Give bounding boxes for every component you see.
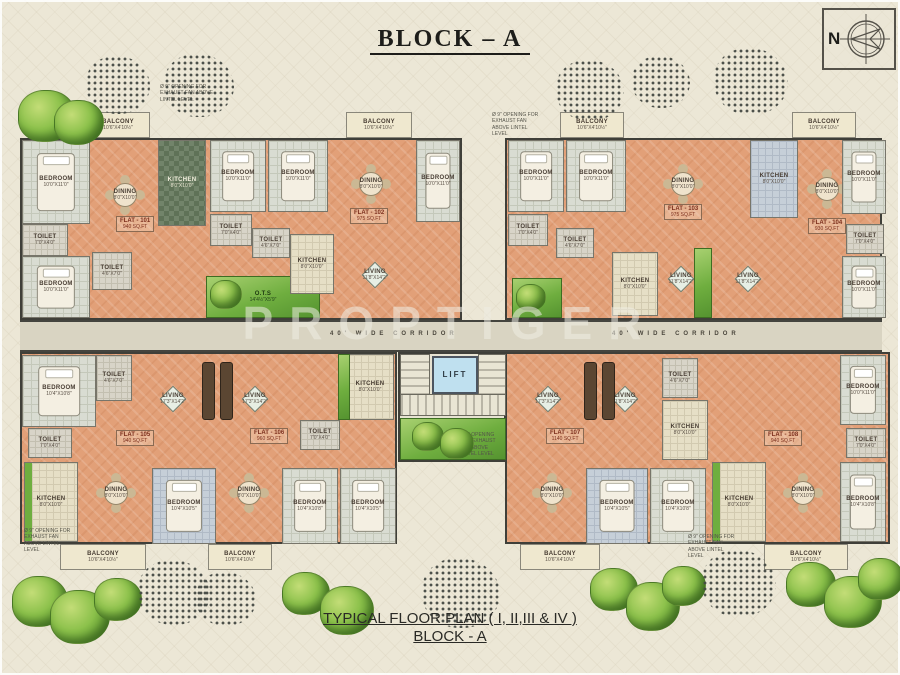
bed-icon <box>37 266 75 309</box>
room-label: KITCHEN <box>671 424 700 431</box>
toilet: TOILET7'0"X4'0" <box>22 224 68 256</box>
kitchen: KITCHEN8'0"X10'0" <box>662 400 708 460</box>
table-round-icon <box>237 481 261 505</box>
room-label: BALCONY <box>224 551 256 558</box>
toilet: TOILET7'0"X4'0" <box>300 420 340 450</box>
room-dims: 10'6"X4'10½" <box>577 126 607 132</box>
bush-icon <box>632 56 690 108</box>
room-dims: 10'6"X4'10½" <box>364 126 394 132</box>
room-dims: 7'0"X4'0" <box>856 444 876 450</box>
room-dims: 8'0"X10'0" <box>674 431 697 437</box>
toilet: TOILET7'0"X4'0" <box>28 428 72 458</box>
room-dims: 10'6"X4'10½" <box>225 558 255 564</box>
living: LIVING11'8"X14'2" <box>716 240 780 318</box>
table-diamond-icon <box>160 386 187 413</box>
bedroom: BEDROOM10'0"X11'0" <box>22 140 90 224</box>
plan-title: BLOCK – A <box>0 26 900 53</box>
toilet: TOILET7'0"X4'0" <box>846 224 884 254</box>
flat-area: 930 SQ.FT <box>812 226 842 232</box>
table-diamond-icon <box>242 386 269 413</box>
wardrobe <box>602 362 615 420</box>
room-label: BALCONY <box>87 551 119 558</box>
room-label: TOILET <box>33 234 56 241</box>
room-label: KITCHEN <box>356 381 385 388</box>
room-label: KITCHEN <box>725 496 754 503</box>
corridor-label-right: 40' WIDE CORRIDOR <box>612 331 740 337</box>
room-dims: 8'0"X10'0" <box>40 503 63 509</box>
table-round-icon <box>113 183 137 207</box>
room-label: TOILET <box>563 237 586 244</box>
bed-icon <box>850 474 876 529</box>
annotation-note: Ø 9" OPENING FOR EXHAUST FAN ABOVE LINTE… <box>492 112 544 137</box>
table-round-icon <box>540 481 564 505</box>
flat-area: 960 SQ.FT <box>254 436 284 442</box>
bedroom: BEDROOM10'0"X11'0" <box>268 140 328 212</box>
stair-landing <box>400 394 506 416</box>
room-dims: 4'6"X7'0" <box>261 244 281 250</box>
balcony: BALCONY10'6"X4'10½" <box>208 544 272 570</box>
room-label: KITCHEN <box>298 258 327 265</box>
bed-icon <box>662 480 694 532</box>
room-label: BALCONY <box>363 119 395 126</box>
room-dims: 10'6"X4'10½" <box>103 126 133 132</box>
flat-label: FLAT - 104930 SQ.FT <box>808 218 846 234</box>
room-label: TOILET <box>308 429 331 436</box>
bedroom: BEDROOM10'0"X11'0" <box>840 355 886 425</box>
bush-icon <box>556 60 624 121</box>
bed-icon <box>352 480 384 532</box>
dining: DINING8'0"X10'0" <box>84 452 148 534</box>
garden-strip <box>694 248 712 318</box>
balcony: BALCONY10'6"X4'10½" <box>792 112 856 138</box>
kitchen: KITCHEN8'0"X10'0" <box>158 140 206 226</box>
bed-icon <box>281 151 315 201</box>
room-label: TOILET <box>259 237 282 244</box>
annotation-note: Ø 9" OPENING FOR EXHAUST FAN ABOVE LINTE… <box>24 528 74 553</box>
table-diamond-icon <box>612 386 639 413</box>
room-dims: 10'6"X4'10½" <box>809 126 839 132</box>
kitchen: KITCHEN8'0"X10'0" <box>750 140 798 218</box>
bedroom: BEDROOM10'4"X10'8" <box>840 462 886 542</box>
room-label: BALCONY <box>544 551 576 558</box>
room-label: BALCONY <box>808 119 840 126</box>
bedroom: BEDROOM10'0"X11'0" <box>566 140 626 212</box>
flat-label: FLAT - 106960 SQ.FT <box>250 428 288 444</box>
toilet: TOILET4'6"X7'0" <box>252 228 290 258</box>
room-dims: 7'0"X4'0" <box>310 436 330 442</box>
flat-area: 940 SQ.FT <box>120 438 150 444</box>
dining: DINING8'0"X10'0" <box>92 140 158 250</box>
bedroom: BEDROOM10'0"X11'0" <box>508 140 564 212</box>
room-label: KITCHEN <box>168 177 197 184</box>
bed-icon <box>851 152 876 203</box>
bush-icon <box>86 56 150 114</box>
tree-icon <box>858 558 900 600</box>
bedroom: BEDROOM10'0"X11'0" <box>22 256 90 318</box>
flat-area: 975 SQ.FT <box>668 212 698 218</box>
room-label: BALCONY <box>790 551 822 558</box>
room-label: KITCHEN <box>621 278 650 285</box>
flat-area: 975 SQ.FT <box>354 216 384 222</box>
bedroom: BEDROOM10'4"X10'8" <box>650 468 706 544</box>
bedroom: BEDROOM10'0"X11'0" <box>842 140 886 214</box>
room-label: TOILET <box>516 224 539 231</box>
table-diamond-icon <box>535 386 562 413</box>
bed-icon <box>166 480 202 532</box>
bed-icon <box>37 153 75 211</box>
bedroom: BEDROOM10'4"X10'5" <box>586 468 648 544</box>
bedroom: BEDROOM10'4"X10'5" <box>340 468 396 544</box>
bed-icon <box>38 366 80 416</box>
room-label: O.T.S <box>255 291 272 298</box>
room-label: KITCHEN <box>760 173 789 180</box>
kitchen: KITCHEN8'0"X10'0" <box>346 354 394 420</box>
bed-icon <box>600 480 635 532</box>
flat-label: FLAT - 1071140 SQ.FT <box>546 428 584 444</box>
room-dims: 8'0"X10'0" <box>171 184 194 190</box>
corridor-label-left: 40' WIDE CORRIDOR <box>330 331 458 337</box>
table-diamond-icon <box>362 262 389 289</box>
toilet: TOILET4'6"X7'0" <box>96 355 132 401</box>
table-round-icon <box>815 177 839 201</box>
plan-title-text: BLOCK – A <box>370 26 531 55</box>
room-dims: 7'0"X4'0" <box>40 444 60 450</box>
flat-label: FLAT - 105940 SQ.FT <box>116 430 154 446</box>
floor-plan-canvas: BLOCK – A N 40' WIDE CORRIDOR 40' WIDE C… <box>0 0 900 675</box>
room-dims: 10'6"X4'10½" <box>88 558 118 564</box>
dining: DINING8'0"X10'0" <box>770 452 836 534</box>
room-dims: 4'6"X7'0" <box>102 272 122 278</box>
room-label: TOILET <box>100 265 123 272</box>
footer-line2: BLOCK - A <box>0 628 900 645</box>
flat-label: FLAT - 102975 SQ.FT <box>350 208 388 224</box>
garden-strip <box>338 354 350 420</box>
room-label: TOILET <box>38 437 61 444</box>
room-label: TOILET <box>219 224 242 231</box>
wardrobe <box>202 362 215 420</box>
dining: DINING8'0"X10'0" <box>520 452 584 534</box>
bed-icon <box>294 480 326 532</box>
wardrobe <box>584 362 597 420</box>
room-dims: 8'0"X10'0" <box>301 265 324 271</box>
room-dims: 8'0"X10'0" <box>728 503 751 509</box>
living: LIVING11'8"X14'2" <box>590 355 660 443</box>
toilet: TOILET4'6"X7'0" <box>92 252 132 290</box>
flat-area: 940 SQ.FT <box>120 224 150 230</box>
bed-icon <box>850 366 876 414</box>
compass-rose-icon <box>840 12 890 66</box>
kitchen: KITCHEN8'0"X10'0" <box>712 462 766 542</box>
bush-icon <box>714 48 788 115</box>
bedroom: BEDROOM10'0"X11'0" <box>842 256 886 318</box>
bedroom: BEDROOM10'0"X11'0" <box>210 140 266 212</box>
room-label: LIFT <box>443 370 468 379</box>
bedroom: BEDROOM10'0"X11'0" <box>416 140 460 222</box>
flat-label: FLAT - 103975 SQ.FT <box>664 204 702 220</box>
room-dims: 10'6"X4'10½" <box>545 558 575 564</box>
table-round-icon <box>104 481 128 505</box>
table-round-icon <box>359 172 383 196</box>
lift: LIFT <box>432 356 478 394</box>
room-label: TOILET <box>853 233 876 240</box>
bedroom: BEDROOM10'4"X10'8" <box>282 468 338 544</box>
room-label: BALCONY <box>102 119 134 126</box>
room-dims: 4'6"X7'0" <box>670 379 690 385</box>
room-dims: 4'6"X7'0" <box>565 244 585 250</box>
balcony: BALCONY10'6"X4'10½" <box>520 544 600 570</box>
room-label: TOILET <box>854 437 877 444</box>
bed-icon <box>425 153 450 209</box>
dining: DINING8'0"X10'0" <box>218 452 280 534</box>
toilet: TOILET4'6"X7'0" <box>556 228 594 258</box>
room-label: KITCHEN <box>37 496 66 503</box>
table-diamond-icon <box>735 266 762 293</box>
bed-icon <box>851 266 876 309</box>
flat-area: 1140 SQ.FT <box>550 436 580 442</box>
living: LIVING11'8"X14'2" <box>336 232 414 318</box>
bush-icon <box>702 550 776 617</box>
room-dims: 8'0"X10'0" <box>359 388 382 394</box>
room-dims: 7'0"X4'0" <box>518 231 538 237</box>
plan-footer: TYPICAL FLOOR PLAN ( I, II,III & IV ) BL… <box>0 610 900 645</box>
bedroom: BEDROOM10'4"X10'5" <box>152 468 216 544</box>
flat-label: FLAT - 101940 SQ.FT <box>116 216 154 232</box>
footer-line1: TYPICAL FLOOR PLAN ( I, II,III & IV ) <box>0 610 900 627</box>
room-dims: 7'0"X4'0" <box>35 241 55 247</box>
kitchen: KITCHEN8'0"X10'0" <box>290 234 334 294</box>
balcony: BALCONY10'6"X4'10½" <box>346 112 412 138</box>
table-round-icon <box>671 172 695 196</box>
bed-icon <box>520 151 552 201</box>
bedroom: BEDROOM10'4"X10'8" <box>22 355 96 427</box>
room-dims: 8'0"X10'0" <box>763 180 786 186</box>
bed-icon <box>579 151 613 201</box>
tree-icon <box>662 566 706 606</box>
bed-icon <box>222 151 254 201</box>
toilet: TOILET7'0"X4'0" <box>508 214 548 246</box>
toilet: TOILET7'0"X4'0" <box>846 428 886 458</box>
wardrobe <box>220 362 233 420</box>
room-dims: 8'0"X10'0" <box>624 285 647 291</box>
room-dims: 7'0"X4'0" <box>855 240 875 246</box>
bush-icon <box>164 54 234 117</box>
flat-label: FLAT - 108940 SQ.FT <box>764 430 802 446</box>
north-compass: N <box>822 8 896 70</box>
table-round-icon <box>791 481 815 505</box>
room-label: TOILET <box>668 372 691 379</box>
room-dims: 7'0"X4'0" <box>221 231 241 237</box>
toilet: TOILET4'6"X7'0" <box>662 358 698 398</box>
table-diamond-icon <box>668 266 695 293</box>
room-dims: 14'4½"X5'9" <box>250 298 277 304</box>
room-label: TOILET <box>102 372 125 379</box>
north-letter: N <box>828 29 840 49</box>
flat-area: 940 SQ.FT <box>768 438 798 444</box>
room-dims: 4'6"X7'0" <box>104 379 124 385</box>
toilet: TOILET7'0"X4'0" <box>210 214 252 246</box>
